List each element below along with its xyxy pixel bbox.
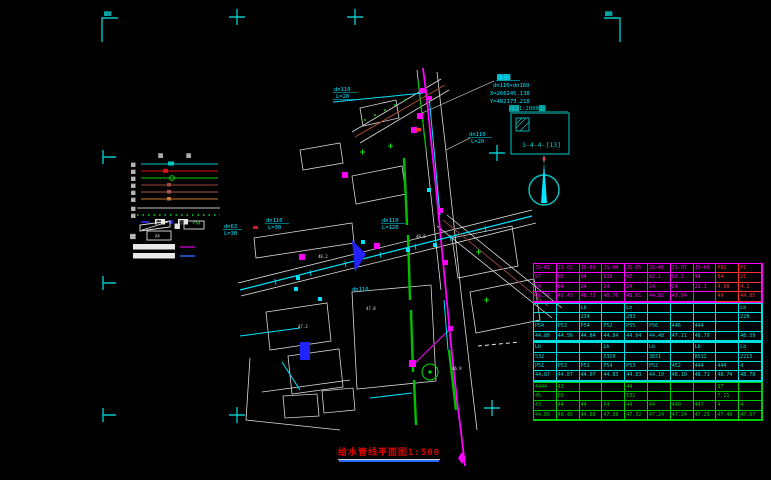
table-group: LbLbLb234283228P54P53P54P52P55P564464444… [533, 303, 763, 343]
table-cell [716, 322, 739, 331]
table-cell: 21.1 [694, 283, 717, 292]
table-cell [671, 343, 694, 352]
drawing-title-scale: 1:500 [408, 448, 440, 458]
table-cell: 44.84 [580, 332, 603, 341]
table-cell: P54 [602, 362, 625, 371]
annotation-line: dn110×dn160 [493, 83, 529, 89]
table-cell: 47.49 [716, 411, 739, 420]
table-cell: 44.87 [534, 371, 557, 380]
table-cell: JS-01 [534, 264, 557, 273]
table-cell: 48.74 [716, 371, 739, 380]
table-cell: Lb [739, 304, 762, 313]
table-cell: 44 [625, 383, 648, 392]
table-cell: 44.82 [648, 292, 671, 301]
table-cell [694, 313, 717, 322]
table-cell: 43 [557, 383, 580, 392]
table-cell [580, 353, 603, 362]
legend-marker-icon [167, 197, 171, 201]
table-cell: 444 [694, 322, 717, 331]
legend-row-label: ▓▓ [131, 206, 136, 211]
table-cell: 87 [716, 383, 739, 392]
legend-row-label: ▓▓ [131, 197, 136, 202]
map-symbols [253, 88, 489, 464]
legend-marker-icon [167, 183, 171, 187]
table-cell: 48.79 [694, 332, 717, 341]
table-cell: 44.83 [625, 371, 648, 380]
table-cell: 24 [625, 283, 648, 292]
table-cell: 452 [671, 362, 694, 371]
table-cell: Lb [648, 343, 671, 352]
table-cell: 49 [716, 292, 739, 301]
table-cell: 94 [694, 273, 717, 282]
table-cell [694, 292, 717, 301]
table-cell [580, 343, 603, 352]
table-cell: 446 [671, 322, 694, 331]
table-cell: 24 [602, 283, 625, 292]
table-cell: 228 [739, 313, 762, 322]
table-cell: 24 [648, 283, 671, 292]
table-cell: 21 [739, 273, 762, 282]
table-cell: P52 [648, 362, 671, 371]
table-cell: Lb [625, 304, 648, 313]
drawing-title: 给水管线平面图1:500 [338, 445, 440, 460]
table-cell: 97 [625, 273, 648, 282]
spot-elevation: 46.9 [452, 366, 462, 371]
corner-mark-top-left [102, 18, 118, 42]
table-cell: 48.10 [671, 371, 694, 380]
table-cell: 4 [739, 362, 762, 371]
node-blocks [294, 188, 437, 301]
table-cell: 4.98 [716, 283, 739, 292]
table-cell: 44.84 [602, 332, 625, 341]
table-cell: 48.73 [580, 292, 603, 301]
table-cell [716, 304, 739, 313]
table-cell [694, 392, 717, 401]
table-cell: P4 [602, 401, 625, 410]
table-cell: 2213 [739, 353, 762, 362]
table-cell: JS-08 [694, 264, 717, 273]
table-cell: 47.28 [602, 411, 625, 420]
annotation-line: Y=482173.218 [490, 99, 530, 105]
sheet-code: 3-4-4-[13] [522, 141, 561, 149]
hatch-square-icon [516, 118, 529, 131]
table-cell [602, 304, 625, 313]
table-cell: P1 [739, 264, 762, 273]
cross-mark [229, 407, 245, 423]
table-cell [648, 383, 671, 392]
table-cell: 44.87 [557, 371, 580, 380]
table-cell [694, 304, 717, 313]
pipe-label: dn110 [382, 218, 399, 224]
table-cell: JS-02 [557, 264, 580, 273]
table-cell: 44 [625, 401, 648, 410]
table-cell: P92 [716, 264, 739, 273]
table-cell: 44.86 [534, 332, 557, 341]
spot-elevation: 47.3 [298, 324, 308, 329]
cross-mark [484, 400, 500, 416]
table-cell: 283 [625, 313, 648, 322]
table-cell: 43.84 [671, 292, 694, 301]
spot-elevation: 48.2 [318, 254, 328, 259]
table-cell [602, 313, 625, 322]
table-cell: 48.81 [625, 292, 648, 301]
legend-frame-caption: ▓▓ [130, 234, 136, 240]
cross-mark [489, 145, 505, 161]
table-cell: 440 [671, 401, 694, 410]
pipe-label: L=30 [268, 225, 281, 231]
table-cell: Lb [694, 343, 717, 352]
compass-needle-icon [541, 162, 547, 203]
annotation-line: X=266245.138 [490, 91, 530, 97]
pipe-label: L=20 [471, 139, 484, 145]
table-cell: 3871 [648, 353, 671, 362]
table-cell: 44.85 [534, 411, 557, 420]
half-cross-mark [103, 408, 116, 422]
table-cell [671, 383, 694, 392]
pipe-lines [240, 68, 548, 466]
table-cell [739, 392, 762, 401]
table-cell: 47.24 [648, 411, 671, 420]
table-cell [534, 313, 557, 322]
spot-elevation: 47.8 [366, 306, 376, 311]
spot-elevation: 48.6 [416, 234, 426, 239]
corner-mark-top-right [604, 18, 620, 42]
table-cell: JS-04 [602, 264, 625, 273]
table-cell: P54 [580, 322, 603, 331]
table-cell: 48.43 [557, 292, 580, 301]
table-cell [739, 383, 762, 392]
table-cell [694, 383, 717, 392]
table-cell: 919 [602, 273, 625, 282]
half-cross-mark [103, 150, 116, 164]
table-cell: P52 [602, 322, 625, 331]
cross-mark [229, 9, 245, 25]
table-cell: 47.29 [694, 411, 717, 420]
table-cell [534, 304, 557, 313]
legend-frame-row: ▓▓ A4 [130, 231, 171, 240]
table-cell: 92.2 [671, 273, 694, 282]
table-cell: JS-05 [625, 264, 648, 273]
table-cell [648, 313, 671, 322]
table-cell: 44.10 [648, 371, 671, 380]
legend-row-label: ▓▓ [131, 183, 136, 188]
index-box: ▓▓▓1:2000▓▓ 3-4-4-[13] [509, 105, 569, 154]
table-cell: 8512 [694, 353, 717, 362]
table-cell: 234 [580, 313, 603, 322]
table-cell: 44.85 [739, 292, 762, 301]
legend-row-label: ▓▓ [131, 213, 136, 218]
legend-bar-rows [133, 244, 195, 259]
table-cell: 444 [694, 362, 717, 371]
legend-marker-icon [163, 169, 168, 173]
table-cell: 24 [671, 283, 694, 292]
index-caption: ▓▓▓1:2000▓▓ [509, 105, 546, 112]
legend-row-label: ▓▓ [131, 176, 136, 181]
table-cell: 47.24 [671, 411, 694, 420]
table-cell: 47.87 [739, 411, 762, 420]
table-cell: 47.11 [671, 332, 694, 341]
table-cell: 44 [557, 401, 580, 410]
table-cell [739, 322, 762, 331]
table-cell [648, 304, 671, 313]
table-cell [716, 332, 739, 341]
table-group: 444443448745D35327.21434444P444444404474… [533, 382, 763, 422]
legend-row-label: ▓▓ [131, 162, 136, 167]
table-cell: 44.83 [602, 371, 625, 380]
table-cell [716, 313, 739, 322]
table-cell: 48.76 [602, 292, 625, 301]
table-cell: Lb [580, 304, 603, 313]
legend-frame-label: A4 [155, 234, 160, 239]
legend-marker-icon [168, 162, 174, 166]
table-cell: 447 [694, 401, 717, 410]
pipe-label: L=120 [382, 225, 399, 231]
table-cell [580, 392, 603, 401]
table-cell: 48.71 [694, 371, 717, 380]
table-cell: D3 [557, 392, 580, 401]
table-cell: JS-07 [671, 264, 694, 273]
cad-canvas: ▓▓▓ ▓▓▓ ▓▓ ▓▓ ▓▓ ▓▓ ▓▓ [0, 0, 771, 480]
table-cell: 24 [534, 283, 557, 292]
corner-micro-text: ▓▓▓ [605, 11, 613, 16]
table-cell [716, 353, 739, 362]
table-cell: 532 [625, 392, 648, 401]
table-cell: P51 [580, 362, 603, 371]
table-cell: JS-06 [648, 264, 671, 273]
pipe-label: L=20 [336, 94, 349, 100]
table-cell [716, 343, 739, 352]
table-cell [625, 353, 648, 362]
table-cell: 44.94 [625, 332, 648, 341]
pipe-label: dn110 [469, 132, 486, 138]
table-cell: Lb [534, 343, 557, 352]
table-cell: 4 [739, 401, 762, 410]
pipe-label: dn63 [224, 224, 237, 230]
table-cell: 44 [580, 401, 603, 410]
table-cell: Lb [602, 343, 625, 352]
table-cell: 44.48 [648, 332, 671, 341]
table-cell: 7.21 [716, 392, 739, 401]
drawing-title-text: 给水管线平面图 [338, 448, 408, 458]
table-cell [625, 343, 648, 352]
table-cell [671, 392, 694, 401]
table-cell: 4444 [534, 383, 557, 392]
table-cell [557, 343, 580, 352]
pipe-table: JS-01JS-02JS-03JS-04JS-05JS-06JS-07JS-08… [533, 263, 763, 421]
table-cell: 47.32 [625, 411, 648, 420]
pipe-label: dn110 [266, 218, 283, 224]
table-cell: 44.88 [580, 411, 603, 420]
table-group: LbLbLbLbLb5325310387185122213P51P53P51P5… [533, 342, 763, 382]
table-cell: 4 [716, 401, 739, 410]
table-cell: 532 [534, 353, 557, 362]
green-pipe [404, 158, 416, 425]
table-cell: 24 [580, 283, 603, 292]
table-cell: 84 [716, 273, 739, 282]
table-cell: 43 [534, 401, 557, 410]
table-cell [580, 383, 603, 392]
table-cell: 48.45 [557, 411, 580, 420]
table-cell: 95 [557, 273, 580, 282]
table-cell: P53 [557, 322, 580, 331]
table-cell: JS-03 [580, 264, 603, 273]
pipe-label: dn110 [352, 287, 369, 293]
legend: ▓▓ ▓▓ ▓▓ ▓▓ ▓▓ ▓▓ ▓▓ [130, 153, 220, 259]
table-cell: P53 [557, 362, 580, 371]
north-arrow [529, 156, 559, 205]
table-cell: 5310 [602, 353, 625, 362]
pipe-label: L=30 [224, 231, 237, 237]
valve-blocks [299, 88, 466, 464]
table-cell [671, 353, 694, 362]
table-group: JS-01JS-02JS-03JS-04JS-05JS-06JS-07JS-08… [533, 263, 763, 303]
table-cell [671, 313, 694, 322]
table-cell: 48.74 [534, 292, 557, 301]
table-cell: P51 [534, 362, 557, 371]
table-cell: 444 [716, 362, 739, 371]
table-cell: 44.56 [557, 332, 580, 341]
table-cell: P55 [625, 322, 648, 331]
half-cross-mark [103, 276, 116, 290]
table-cell: 97 [534, 273, 557, 282]
table-cell: 48.78 [739, 371, 762, 380]
table-cell [557, 313, 580, 322]
table-cell [557, 304, 580, 313]
cross-mark [347, 9, 363, 25]
pipe-label: dn110 [334, 87, 351, 93]
table-cell [602, 392, 625, 401]
annotation-line: ▓▓▓▓ [497, 74, 511, 81]
table-cell: 48.39 [739, 332, 762, 341]
corner-micro-text: ▓▓▓ [104, 11, 112, 16]
table-cell [671, 304, 694, 313]
table-cell [557, 353, 580, 362]
table-cell [648, 392, 671, 401]
legend-col-header: ▓▓ [186, 153, 191, 158]
table-cell: 92.1 [648, 273, 671, 282]
table-cell: P53 [625, 362, 648, 371]
table-cell: Lb [739, 343, 762, 352]
table-cell: P54 [534, 322, 557, 331]
table-cell: 84 [557, 283, 580, 292]
legend-col-header: ▓▓ [158, 153, 163, 158]
legend-row-label: ▓▓ [131, 169, 136, 174]
table-cell: 4.1 [739, 283, 762, 292]
table-cell: P56 [648, 322, 671, 331]
table-cell: 45 [534, 392, 557, 401]
table-cell: 44 [648, 401, 671, 410]
legend-marker-icon [167, 190, 171, 194]
table-cell: 44.07 [580, 371, 603, 380]
table-cell [602, 383, 625, 392]
legend-row-label: ▓▓ [131, 190, 136, 195]
table-cell: 94 [580, 273, 603, 282]
